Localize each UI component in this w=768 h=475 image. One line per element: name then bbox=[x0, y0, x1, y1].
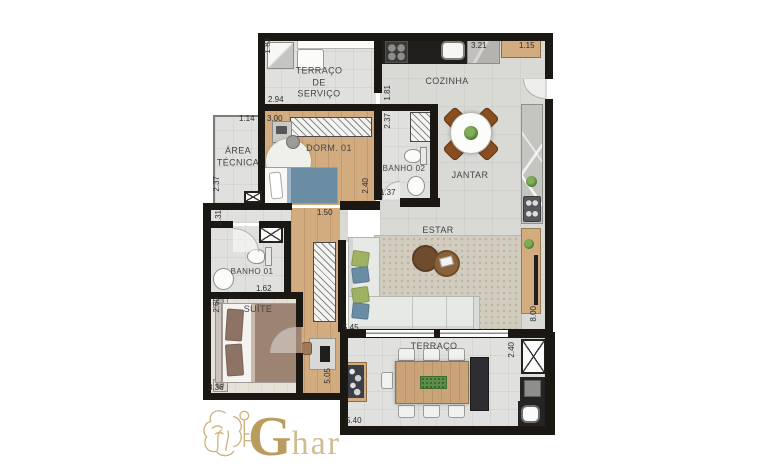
desk-chair-dorm1 bbox=[286, 135, 300, 149]
wall-segment bbox=[258, 104, 438, 111]
wall-segment bbox=[203, 393, 347, 400]
console-tv-icon bbox=[320, 346, 330, 362]
room-label-technical-area: ÁREA TÉCNICA bbox=[217, 145, 259, 168]
terrace-cabinet-inner bbox=[524, 380, 541, 397]
room-label-bath2: BANHO 02 bbox=[383, 164, 426, 174]
room-label-service-terrace: TERRAÇO DE SERVIÇO bbox=[296, 65, 343, 100]
sofa-armrest bbox=[473, 296, 480, 332]
wall-segment bbox=[545, 332, 555, 432]
dim-label: 3.21 bbox=[471, 42, 487, 50]
pillow-green bbox=[351, 250, 370, 268]
desk-laptop-icon bbox=[276, 126, 287, 134]
closet-hall bbox=[313, 242, 336, 322]
stove-icon bbox=[385, 41, 408, 63]
dim-label: 1.37 bbox=[380, 189, 396, 197]
bed-suite-headboard bbox=[215, 303, 222, 383]
floor-plan: TERRAÇO DE SERVIÇO COZINHA ÁREA TÉCNICA … bbox=[0, 0, 768, 475]
wall-segment bbox=[296, 299, 303, 327]
dim-label: 1.62 bbox=[256, 285, 272, 293]
terrace-shaft-xbox bbox=[521, 339, 546, 374]
technical-shaft-xbox bbox=[244, 191, 262, 203]
toilet-bath2 bbox=[420, 147, 427, 165]
bed-dorm1-blanket bbox=[287, 168, 337, 203]
pillow-blue bbox=[351, 302, 370, 320]
tv-panel bbox=[534, 255, 538, 305]
bed-suite-pillow bbox=[225, 308, 244, 341]
plant-icon bbox=[526, 176, 537, 187]
grill-panel bbox=[470, 357, 489, 411]
wall-segment bbox=[340, 201, 380, 210]
counter-cooktop bbox=[523, 196, 541, 222]
dim-label: 2.37 bbox=[213, 176, 221, 192]
dim-label: 8.00 bbox=[530, 306, 538, 322]
plant-icon bbox=[524, 239, 534, 249]
brand-logo: Ghar bbox=[196, 400, 366, 460]
logo-initial: G bbox=[248, 416, 292, 460]
wall-segment bbox=[258, 33, 553, 41]
wall-segment bbox=[374, 33, 382, 93]
dim-label: 2.94 bbox=[268, 96, 284, 104]
room-label-living: ESTAR bbox=[422, 225, 453, 237]
room-label-bath1: BANHO 01 bbox=[231, 267, 274, 277]
lion-key-logo-icon bbox=[196, 404, 254, 460]
dim-label: 1.15 bbox=[519, 42, 535, 50]
toilet-bath1 bbox=[265, 247, 272, 266]
wall-segment bbox=[284, 221, 291, 292]
room-label-suite: SUÍTE bbox=[244, 304, 273, 316]
dim-label: 5.45 bbox=[343, 324, 359, 332]
terrace-sink bbox=[521, 405, 540, 423]
wall-segment bbox=[400, 198, 440, 207]
terrace-sideboard-top bbox=[347, 365, 364, 398]
dim-label: 2.31 bbox=[215, 210, 223, 226]
dim-label: 3.36 bbox=[208, 384, 224, 392]
bed-suite-pillow bbox=[225, 343, 244, 376]
terrace-chair bbox=[398, 405, 415, 418]
sofa-cushion-line bbox=[446, 297, 447, 331]
wall-segment bbox=[430, 104, 438, 207]
sliding-glass-door bbox=[366, 330, 434, 337]
dim-label: 2.37 bbox=[384, 113, 392, 129]
kitchen-sink bbox=[441, 41, 465, 60]
sink-bath2 bbox=[407, 176, 425, 196]
wall-segment bbox=[374, 104, 382, 200]
pillow-blue bbox=[351, 266, 370, 284]
dim-label: 2.40 bbox=[362, 178, 370, 194]
dim-label: 1.14 bbox=[239, 115, 255, 123]
terrace-table-runner bbox=[420, 376, 447, 389]
shower-bath2 bbox=[410, 112, 431, 142]
terrace-chair bbox=[448, 405, 465, 418]
dim-label: 5.05 bbox=[324, 368, 332, 384]
terrace-chair bbox=[381, 372, 393, 389]
dim-label: 1.81 bbox=[384, 85, 392, 101]
dim-label: 2.60 bbox=[213, 297, 221, 313]
dim-label: 1.50 bbox=[317, 209, 333, 217]
toilet-bath2-bowl bbox=[404, 149, 421, 163]
wall-segment bbox=[203, 203, 211, 400]
duct-shaft-xbox bbox=[259, 226, 283, 243]
wall-segment bbox=[545, 99, 553, 332]
wall-segment bbox=[340, 426, 555, 435]
room-label-kitchen: COZINHA bbox=[425, 76, 468, 88]
wall-segment bbox=[338, 240, 346, 332]
dim-label: 1.83 bbox=[264, 38, 272, 54]
wall-segment bbox=[258, 33, 265, 210]
logo-text: har bbox=[292, 429, 341, 460]
room-label-dining: JANTAR bbox=[452, 170, 489, 182]
dim-label: 3.00 bbox=[267, 115, 283, 123]
room-label-terrace: TERRAÇO bbox=[411, 341, 458, 353]
sofa-cushion-line bbox=[412, 297, 413, 331]
sliding-glass-door bbox=[440, 330, 508, 337]
centerpiece-plant-icon bbox=[464, 126, 478, 140]
wall-segment bbox=[545, 33, 553, 79]
room-label-dorm1: DORM. 01 bbox=[306, 143, 352, 155]
dim-label: 2.40 bbox=[508, 342, 516, 358]
terrace-chair bbox=[423, 405, 440, 418]
wardrobe-dorm1 bbox=[290, 117, 372, 137]
